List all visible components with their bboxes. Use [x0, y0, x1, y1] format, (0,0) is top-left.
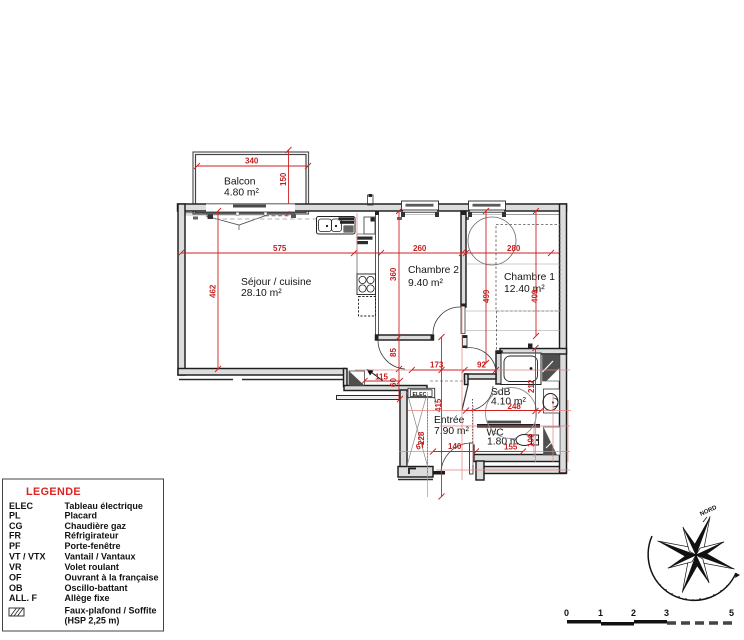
- svg-text:Entrée: Entrée: [434, 415, 465, 426]
- svg-text:FR: FR: [9, 531, 21, 541]
- svg-text:Vantail / Vantaux: Vantail / Vantaux: [65, 552, 136, 562]
- svg-text:Allège fixe: Allège fixe: [65, 593, 110, 603]
- svg-text:415: 415: [434, 398, 443, 412]
- svg-text:Ouvrant à la française: Ouvrant à la française: [65, 573, 159, 583]
- svg-text:260: 260: [413, 244, 427, 253]
- svg-text:5: 5: [729, 608, 734, 618]
- svg-text:2: 2: [631, 608, 636, 618]
- svg-text:VR: VR: [9, 562, 22, 572]
- svg-text:Réfrigirateur: Réfrigirateur: [65, 531, 120, 541]
- svg-text:409: 409: [531, 289, 540, 303]
- svg-text:Chaudière gaz: Chaudière gaz: [65, 521, 127, 531]
- svg-text:92: 92: [477, 361, 486, 370]
- svg-text:7.90 m²: 7.90 m²: [434, 426, 469, 437]
- svg-text:100: 100: [527, 433, 536, 447]
- svg-text:Placard: Placard: [65, 511, 98, 521]
- svg-text:85: 85: [389, 348, 398, 357]
- svg-text:4.80 m²: 4.80 m²: [224, 188, 259, 199]
- svg-text:150: 150: [279, 172, 288, 186]
- svg-text:OF: OF: [9, 573, 22, 583]
- svg-text:Séjour / cuisine: Séjour / cuisine: [241, 277, 312, 288]
- svg-text:9.40 m²: 9.40 m²: [408, 278, 443, 289]
- svg-text:Chambre 1: Chambre 1: [504, 272, 555, 283]
- svg-text:155: 155: [504, 443, 518, 452]
- svg-text:VT / VTX: VT / VTX: [9, 552, 46, 562]
- svg-text:Oscillo-battant: Oscillo-battant: [65, 583, 128, 593]
- svg-text:Faux-plafond / Soffite: Faux-plafond / Soffite: [65, 606, 157, 616]
- svg-text:3: 3: [664, 608, 669, 618]
- svg-text:248: 248: [508, 402, 522, 411]
- svg-text:Porte-fenêtre: Porte-fenêtre: [65, 541, 121, 551]
- svg-text:(HSP 2,25 m): (HSP 2,25 m): [65, 616, 120, 626]
- svg-text:LEGENDE: LEGENDE: [26, 486, 81, 498]
- svg-text:0: 0: [564, 608, 569, 618]
- svg-text:280: 280: [507, 244, 521, 253]
- svg-text:140: 140: [448, 442, 462, 451]
- svg-text:OB: OB: [9, 583, 23, 593]
- svg-text:PF: PF: [9, 541, 21, 551]
- svg-text:Balcon: Balcon: [224, 177, 256, 188]
- svg-text:499: 499: [482, 289, 491, 303]
- svg-text:Volet roulant: Volet roulant: [65, 562, 119, 572]
- svg-text:340: 340: [245, 157, 259, 166]
- svg-text:1: 1: [598, 608, 603, 618]
- svg-text:115: 115: [375, 373, 388, 382]
- svg-text:60: 60: [389, 378, 398, 387]
- svg-text:212: 212: [527, 379, 536, 393]
- svg-text:28.10 m²: 28.10 m²: [241, 288, 282, 299]
- svg-text:Tableau électrique: Tableau électrique: [65, 501, 143, 511]
- svg-text:360: 360: [389, 267, 398, 281]
- svg-text:Chambre 2: Chambre 2: [408, 265, 459, 276]
- svg-text:ELEC: ELEC: [9, 501, 34, 511]
- svg-text:575: 575: [273, 244, 287, 253]
- svg-text:462: 462: [209, 284, 218, 298]
- svg-text:ALL. F: ALL. F: [9, 593, 37, 603]
- svg-text:PL: PL: [9, 511, 21, 521]
- svg-text:CG: CG: [9, 521, 23, 531]
- svg-text:ELEC: ELEC: [413, 392, 427, 398]
